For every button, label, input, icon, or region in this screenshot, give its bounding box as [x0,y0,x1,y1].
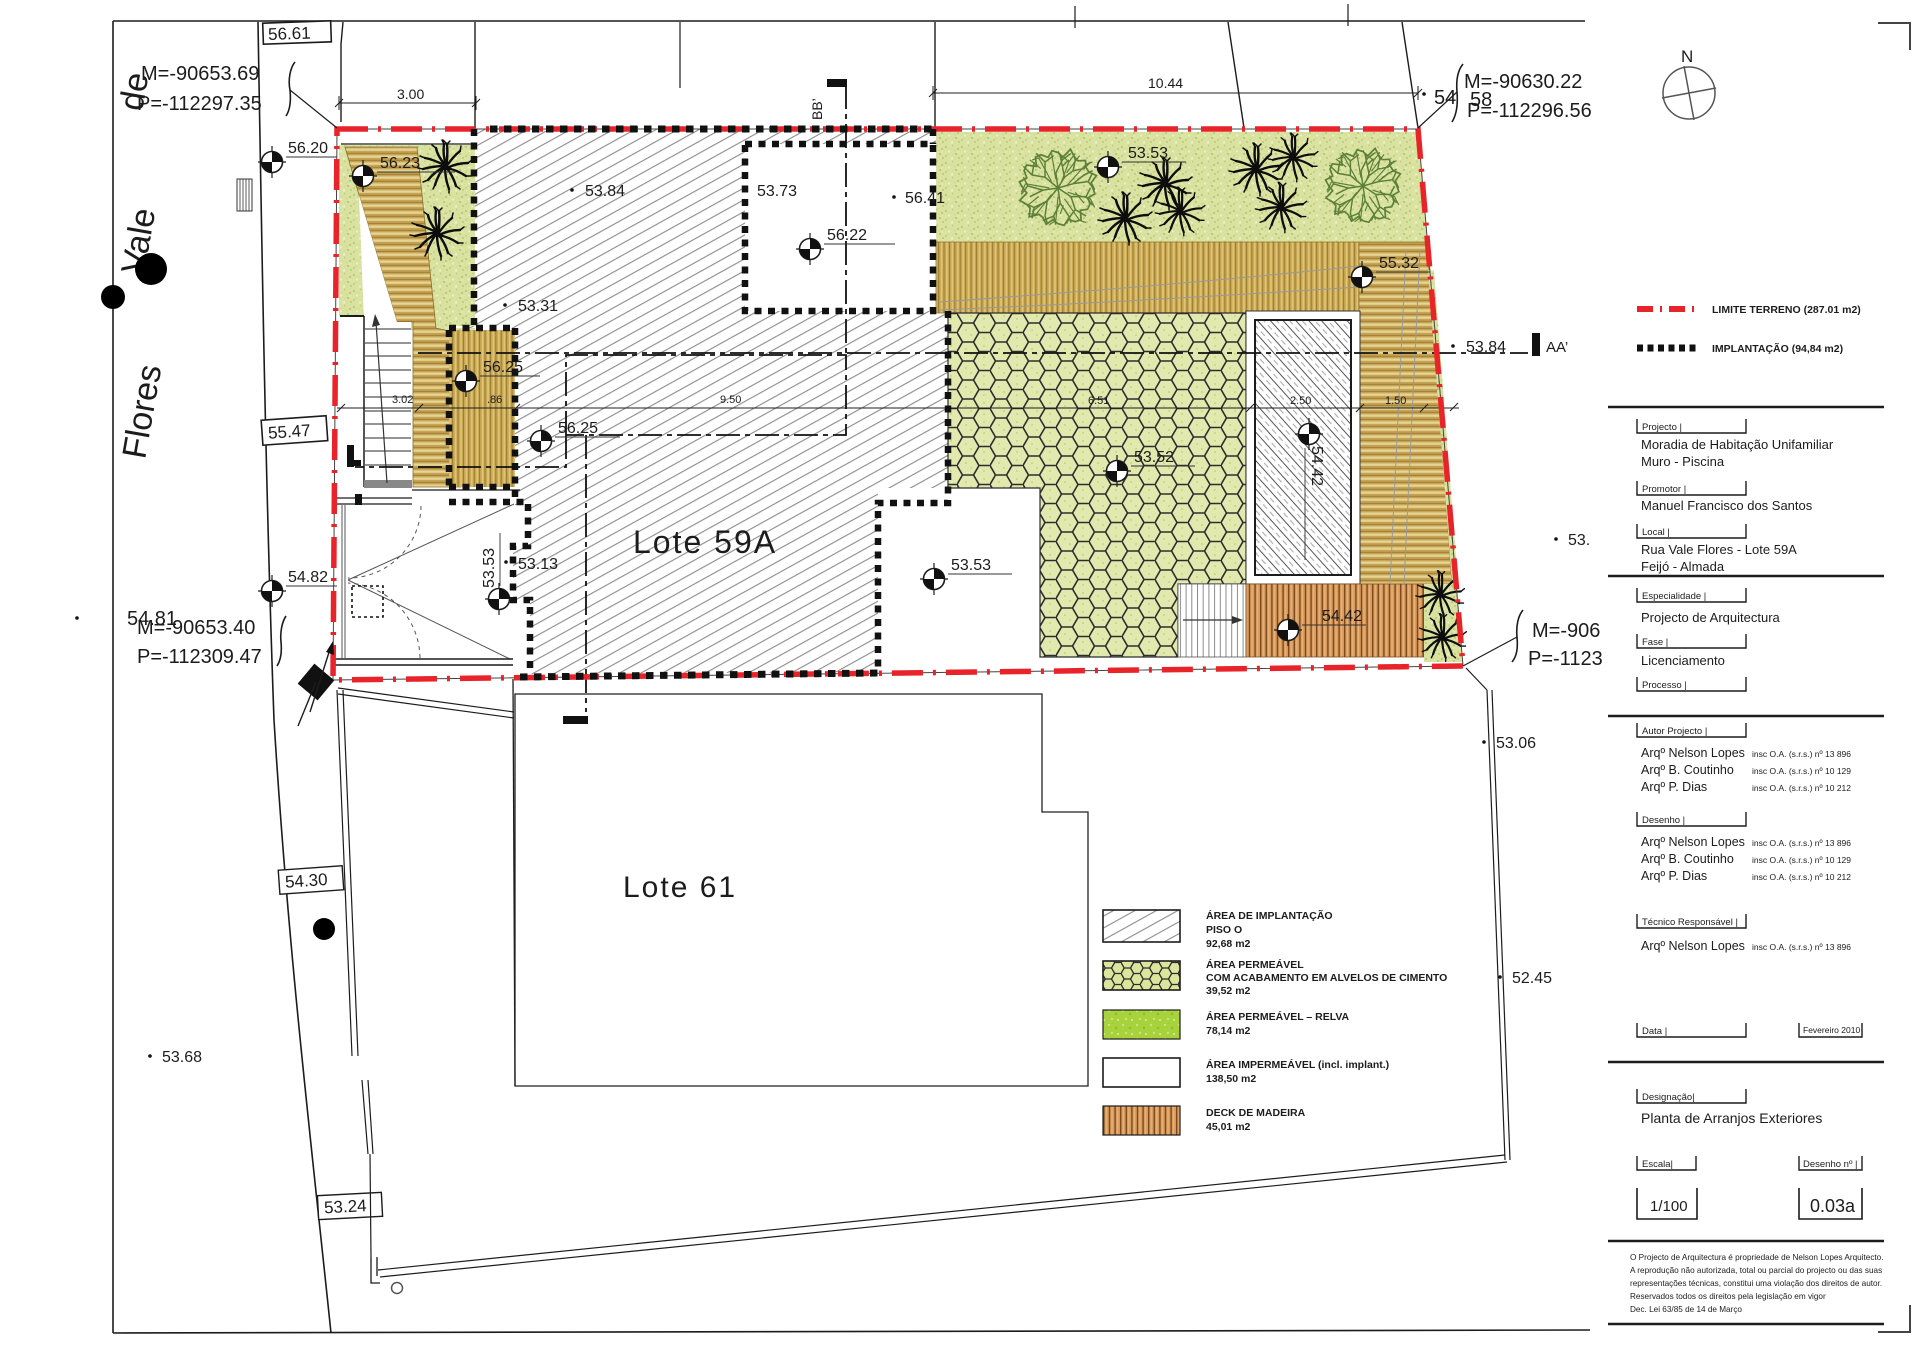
svg-text:Planta de Arranjos Exteriores: Planta de Arranjos Exteriores [1641,1110,1822,1126]
svg-text:LIMITE TERRENO (287.01 m2): LIMITE TERRENO (287.01 m2) [1712,304,1861,316]
svg-text:55.32: 55.32 [1379,255,1419,272]
svg-text:ÁREA PERMEÁVEL – RELVA: ÁREA PERMEÁVEL – RELVA [1206,1010,1350,1023]
svg-text:COM ACABAMENTO EM ALVELOS DE C: COM ACABAMENTO EM ALVELOS DE CIMENTO [1206,972,1447,984]
svg-text:insc O.A. (s.r.s.) nº 10 212: insc O.A. (s.r.s.) nº 10 212 [1752,872,1851,882]
svg-text:M=-90653.69: M=-90653.69 [141,63,259,85]
svg-text:Arqº Nelson Lopes: Arqº Nelson Lopes [1641,746,1745,760]
svg-text:Lote 61: Lote 61 [623,871,737,904]
svg-text:ÁREA IMPERMEÁVEL (incl. implan: ÁREA IMPERMEÁVEL (incl. implant.) [1206,1058,1389,1071]
svg-text:0.03a: 0.03a [1810,1196,1856,1216]
svg-text:54: 54 [1434,87,1456,109]
svg-text:Feijó - Almada: Feijó - Almada [1641,559,1725,574]
svg-text:53.53: 53.53 [951,557,991,574]
svg-text:53.84: 53.84 [1466,339,1506,356]
svg-text:Desenho nº |: Desenho nº | [1803,1159,1858,1170]
svg-text:Designação|: Designação| [1642,1092,1695,1103]
svg-text:Desenho |: Desenho | [1642,815,1685,826]
svg-text:Local |: Local | [1642,527,1670,538]
svg-text:Reservados todos os direitos p: Reservados todos os direitos pela legisl… [1630,1292,1826,1301]
svg-text:56.20: 56.20 [288,140,328,157]
svg-text:Moradia de Habitação Unifamili: Moradia de Habitação Unifamiliar [1641,437,1834,452]
svg-text:39,52 m2: 39,52 m2 [1206,985,1251,997]
svg-text:56.41: 56.41 [905,190,945,207]
svg-text:78,14 m2: 78,14 m2 [1206,1025,1251,1037]
svg-text:insc O.A. (s.r.s.) nº 10 212: insc O.A. (s.r.s.) nº 10 212 [1752,783,1851,793]
svg-text:Especialidade |: Especialidade | [1642,591,1706,602]
svg-text:Arqº P. Dias: Arqº P. Dias [1641,780,1707,794]
svg-text:Promotor |: Promotor | [1642,484,1686,495]
svg-text:Rua Vale Flores - Lote 59A: Rua Vale Flores - Lote 59A [1641,542,1797,557]
svg-text:53.53: 53.53 [1128,145,1168,162]
svg-text:138,50 m2: 138,50 m2 [1206,1073,1256,1085]
svg-text:BB’: BB’ [809,98,825,120]
svg-text:56.23: 56.23 [380,155,420,172]
svg-text:1.50: 1.50 [1385,395,1406,407]
svg-text:M=-90653.40: M=-90653.40 [137,617,255,639]
svg-text:N: N [1681,47,1693,66]
svg-text:6.51: 6.51 [1088,395,1109,407]
svg-text:Fase |: Fase | [1642,637,1668,648]
svg-text:Arqº B. Coutinho: Arqº B. Coutinho [1641,763,1734,777]
svg-text:O Projecto de Arquitectura é p: O Projecto de Arquitectura é propriedade… [1630,1253,1884,1262]
svg-text:ÁREA PERMEÁVEL: ÁREA PERMEÁVEL [1206,958,1304,971]
svg-text:Dec. Lei 63/85 de 14 de Março: Dec. Lei 63/85 de 14 de Março [1630,1305,1742,1314]
svg-text:54.30: 54.30 [284,870,328,892]
svg-text:53.: 53. [1568,532,1590,549]
svg-text:53.73: 53.73 [757,183,797,200]
svg-text:DECK DE MADEIRA: DECK DE MADEIRA [1206,1107,1306,1119]
svg-text:56.25: 56.25 [483,359,523,376]
svg-text:3.02: 3.02 [392,394,413,406]
svg-text:P=-1123: P=-1123 [1528,648,1603,670]
svg-text:Arqº P. Dias: Arqº P. Dias [1641,869,1707,883]
svg-text:Autor Projecto |: Autor Projecto | [1642,726,1707,737]
svg-text:Arqº Nelson Lopes: Arqº Nelson Lopes [1641,835,1745,849]
svg-text:insc O.A. (s.r.s.) nº 10 129: insc O.A. (s.r.s.) nº 10 129 [1752,855,1851,865]
svg-text:insc O.A. (s.r.s.) nº 10 129: insc O.A. (s.r.s.) nº 10 129 [1752,766,1851,776]
svg-text:Licenciamento: Licenciamento [1641,653,1725,668]
svg-text:Fevereiro 2010: Fevereiro 2010 [1803,1025,1860,1035]
svg-text:A reprodução não autorizada, t: A reprodução não autorizada, total ou pa… [1630,1266,1882,1275]
svg-text:Muro - Piscina: Muro - Piscina [1641,454,1725,469]
svg-text:3.00: 3.00 [397,86,424,102]
svg-text:2.50: 2.50 [1290,395,1311,407]
svg-text:54.82: 54.82 [288,569,328,586]
svg-text:ÁREA DE IMPLANTAÇÃO: ÁREA DE IMPLANTAÇÃO [1206,909,1333,922]
svg-text:IMPLANTAÇÃO (94,84 m2): IMPLANTAÇÃO (94,84 m2) [1712,342,1843,355]
svg-text:Lote 59A: Lote 59A [633,524,777,560]
svg-text:Projecto |: Projecto | [1642,422,1682,433]
svg-text:56.25: 56.25 [558,420,598,437]
svg-text:PISO O: PISO O [1206,924,1242,936]
svg-text:53.84: 53.84 [585,183,625,200]
svg-text:P=-112296.56: P=-112296.56 [1467,100,1592,122]
svg-text:53.31: 53.31 [518,298,558,315]
svg-text:Arqº B. Coutinho: Arqº B. Coutinho [1641,852,1734,866]
svg-text:10.44: 10.44 [1148,75,1183,91]
svg-text:Técnico Responsável |: Técnico Responsável | [1642,917,1738,928]
svg-text:53.06: 53.06 [1496,735,1536,752]
svg-text:Projecto de Arquitectura: Projecto de Arquitectura [1641,610,1781,625]
svg-text:representações técnicas, const: representações técnicas, constitui uma v… [1630,1279,1882,1288]
svg-text:54.42: 54.42 [1322,608,1362,625]
svg-text:45,01 m2: 45,01 m2 [1206,1121,1251,1133]
svg-text:Manuel Francisco dos Santos: Manuel Francisco dos Santos [1641,498,1813,513]
svg-text:M=-906: M=-906 [1532,620,1600,642]
svg-text:53.13: 53.13 [518,556,558,573]
svg-text:Arqº Nelson Lopes: Arqº Nelson Lopes [1641,939,1745,953]
svg-text:56.61: 56.61 [268,24,311,44]
svg-text:9.50: 9.50 [720,394,741,406]
svg-text:52.45: 52.45 [1512,970,1552,987]
svg-text:M=-90630.22: M=-90630.22 [1464,71,1582,93]
svg-text:AA’: AA’ [1546,339,1568,356]
svg-text:Escala|: Escala| [1642,1159,1673,1170]
svg-text:.86: .86 [487,394,502,406]
svg-text:53.68: 53.68 [162,1049,202,1066]
svg-text:54.42: 54.42 [1308,446,1325,486]
svg-text:insc O.A. (s.r.s.) nº 13 896: insc O.A. (s.r.s.) nº 13 896 [1752,749,1851,759]
svg-text:53.53: 53.53 [481,548,498,588]
svg-text:P=-112309.47: P=-112309.47 [137,646,262,668]
svg-text:insc O.A. (s.r.s.) nº 13 896: insc O.A. (s.r.s.) nº 13 896 [1752,942,1851,952]
svg-text:53.52: 53.52 [1134,449,1174,466]
svg-text:56.22: 56.22 [827,227,867,244]
svg-text:Data |: Data | [1642,1026,1667,1037]
svg-text:55.47: 55.47 [267,421,311,443]
svg-text:92,68 m2: 92,68 m2 [1206,938,1251,950]
svg-text:P=-112297.35: P=-112297.35 [137,93,262,115]
svg-text:1/100: 1/100 [1650,1198,1688,1215]
svg-text:Processo |: Processo | [1642,680,1687,691]
svg-text:insc O.A. (s.r.s.) nº 13 896: insc O.A. (s.r.s.) nº 13 896 [1752,838,1851,848]
svg-text:53.24: 53.24 [324,1196,367,1217]
